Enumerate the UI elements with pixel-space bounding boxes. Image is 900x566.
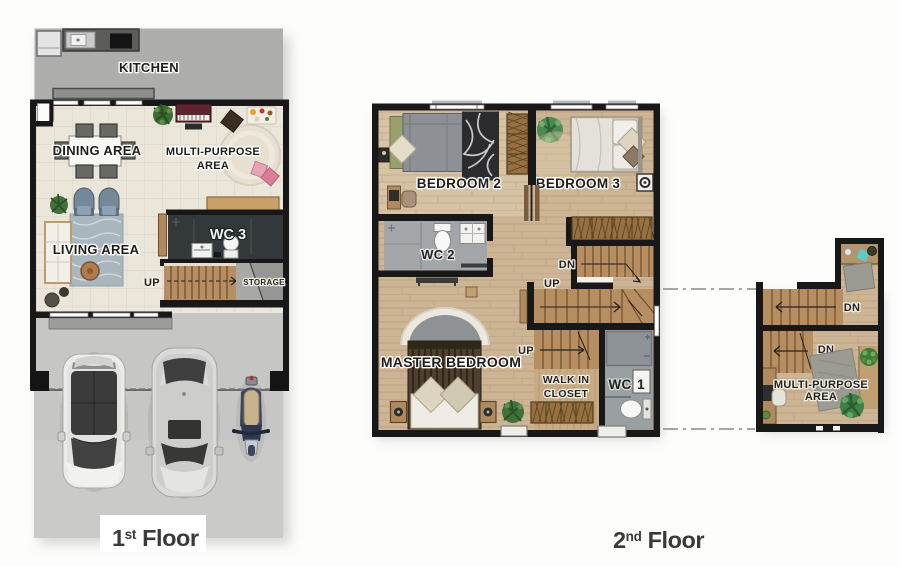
svg-text:BEDROOM 3: BEDROOM 3 [536, 176, 621, 191]
svg-text:WC 2: WC 2 [421, 247, 455, 262]
svg-text:DINING AREA: DINING AREA [53, 143, 142, 158]
svg-text:BEDROOM 2: BEDROOM 2 [417, 176, 501, 191]
svg-text:1: 1 [637, 377, 645, 392]
svg-text:MASTER BEDROOM: MASTER BEDROOM [381, 354, 521, 370]
svg-text:DN: DN [844, 302, 861, 314]
svg-text:MULTI-PURPOSE: MULTI-PURPOSE [166, 146, 260, 158]
svg-text:WALK IN: WALK IN [543, 374, 589, 386]
svg-text:MULTI-PURPOSE: MULTI-PURPOSE [774, 379, 868, 391]
svg-text:UP: UP [518, 345, 534, 357]
svg-text:WC 3: WC 3 [210, 227, 246, 243]
svg-text:STORAGE: STORAGE [243, 278, 285, 287]
svg-text:DN: DN [559, 259, 576, 271]
svg-text:UP: UP [544, 278, 560, 290]
svg-text:KITCHEN: KITCHEN [119, 60, 179, 75]
svg-text:AREA: AREA [197, 160, 229, 172]
svg-text:WC: WC [608, 377, 631, 392]
svg-text:CLOSET: CLOSET [544, 388, 589, 400]
svg-text:UP: UP [144, 277, 160, 289]
svg-text:LIVING AREA: LIVING AREA [53, 242, 140, 257]
svg-text:AREA: AREA [805, 391, 837, 403]
